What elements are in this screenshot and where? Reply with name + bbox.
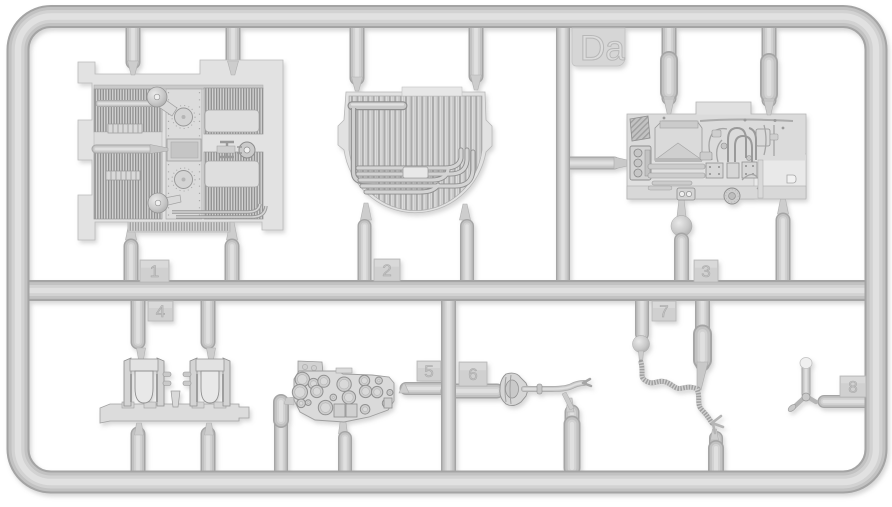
svg-text:3: 3: [701, 262, 710, 281]
svg-text:2: 2: [382, 261, 391, 280]
svg-text:8: 8: [848, 377, 857, 396]
svg-text:1: 1: [150, 262, 159, 281]
svg-text:4: 4: [156, 302, 165, 321]
svg-text:Da: Da: [580, 29, 625, 68]
svg-text:6: 6: [468, 365, 477, 384]
svg-text:7: 7: [659, 302, 668, 321]
svg-text:5: 5: [424, 362, 433, 381]
